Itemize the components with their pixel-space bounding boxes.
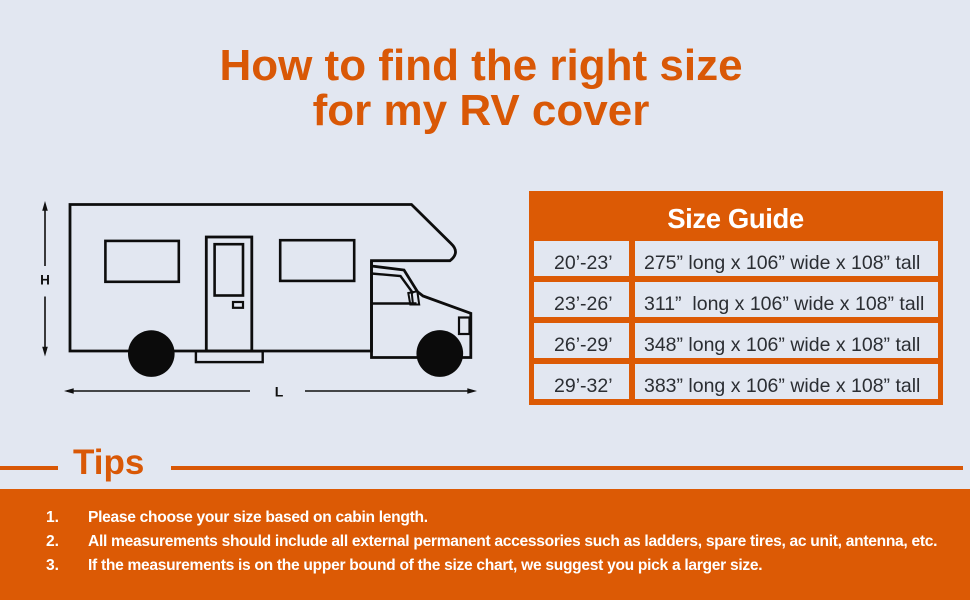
svg-text:H: H [40, 273, 50, 288]
svg-text:L: L [275, 384, 284, 400]
